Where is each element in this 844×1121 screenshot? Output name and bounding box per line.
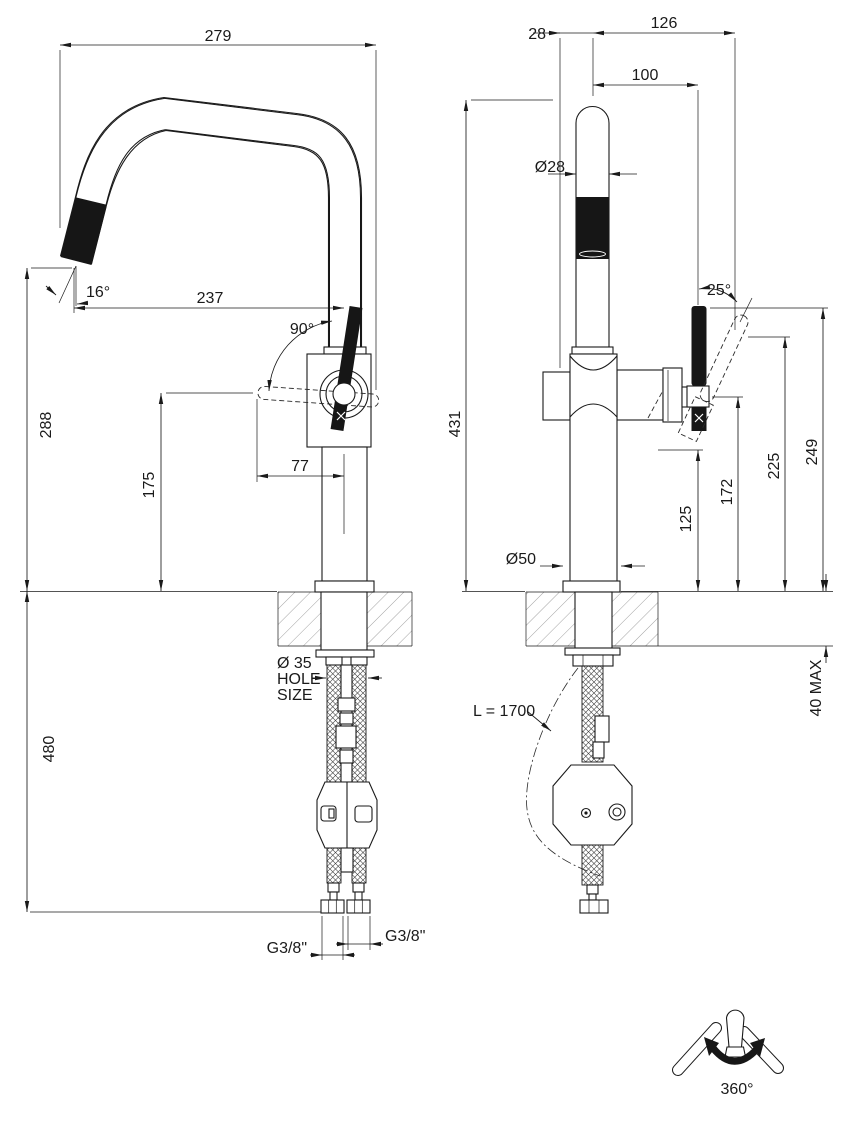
base-flange-front [563,581,620,592]
dim-431: 431 [447,411,464,438]
hole-size-line3: SIZE [277,687,313,704]
dim-100: 100 [632,67,659,84]
base-flange-side [315,581,374,592]
dim-288: 288 [38,412,55,439]
faucet-dimension-drawing: 279 237 16° 90° 288 175 77 480 Ø 35 HOL [0,0,844,1121]
collar-front [572,347,613,354]
dim-hose-length: L = 1700 [473,703,535,720]
dim-126: 126 [651,15,678,32]
valve-cylinder [617,370,663,420]
dim-16deg: 16° [86,284,110,301]
dim-90deg: 90° [290,321,314,338]
technical-drawing-page: 279 237 16° 90° 288 175 77 480 Ø 35 HOL [0,0,844,1121]
dim-279: 279 [205,28,232,45]
handle-tip-front [692,407,707,431]
hose-nut-left [321,900,344,913]
valve-cap-ring [663,368,682,422]
dim-28: 28 [528,26,546,43]
hole-size-line2: HOLE [277,671,321,688]
valve-left-end [543,372,570,420]
handle-front [692,306,707,386]
dim-480: 480 [41,736,58,763]
spray-head [76,203,91,261]
dim-237: 237 [197,290,224,307]
hole-size-line1: Ø 35 [277,655,312,672]
mounting-shank-front [575,592,612,650]
supply-hose-right [352,665,366,782]
dim-40max: 40 MAX [808,659,825,716]
faucet-side-view [61,98,380,914]
supply-hose-left [327,665,341,782]
mounting-flange-front [565,648,620,655]
spray-head-front [577,197,609,259]
faucet-front-view [526,107,753,914]
mounting-nut-bar [316,650,374,657]
dim-25deg: 25° [707,282,731,299]
dim-g38-right: G3/8" [385,928,425,945]
dim-77: 77 [291,458,309,475]
column-side [322,447,367,581]
spout-top-icon [727,1010,745,1047]
hose-nut-front [580,900,608,913]
dim-dia28: Ø28 [535,159,565,176]
pivot-hub [333,383,355,405]
mounting-nut-front [573,655,613,666]
dim-225: 225 [766,453,783,480]
handle-dashed-25deg [678,312,753,442]
dim-360deg: 360° [720,1081,753,1098]
mounting-shank-side [321,592,367,650]
dim-249: 249 [804,439,821,466]
dim-g38-left: G3/8" [267,940,307,957]
rotation-360-icon: 360° [678,1010,778,1098]
hose-nut-right [347,900,370,913]
dim-172: 172 [719,479,736,506]
handle-pivot-front [687,386,709,407]
dim-125: 125 [678,506,695,533]
dim-175: 175 [141,472,158,499]
dim-dia50: Ø50 [506,551,536,568]
column-front [570,354,617,582]
